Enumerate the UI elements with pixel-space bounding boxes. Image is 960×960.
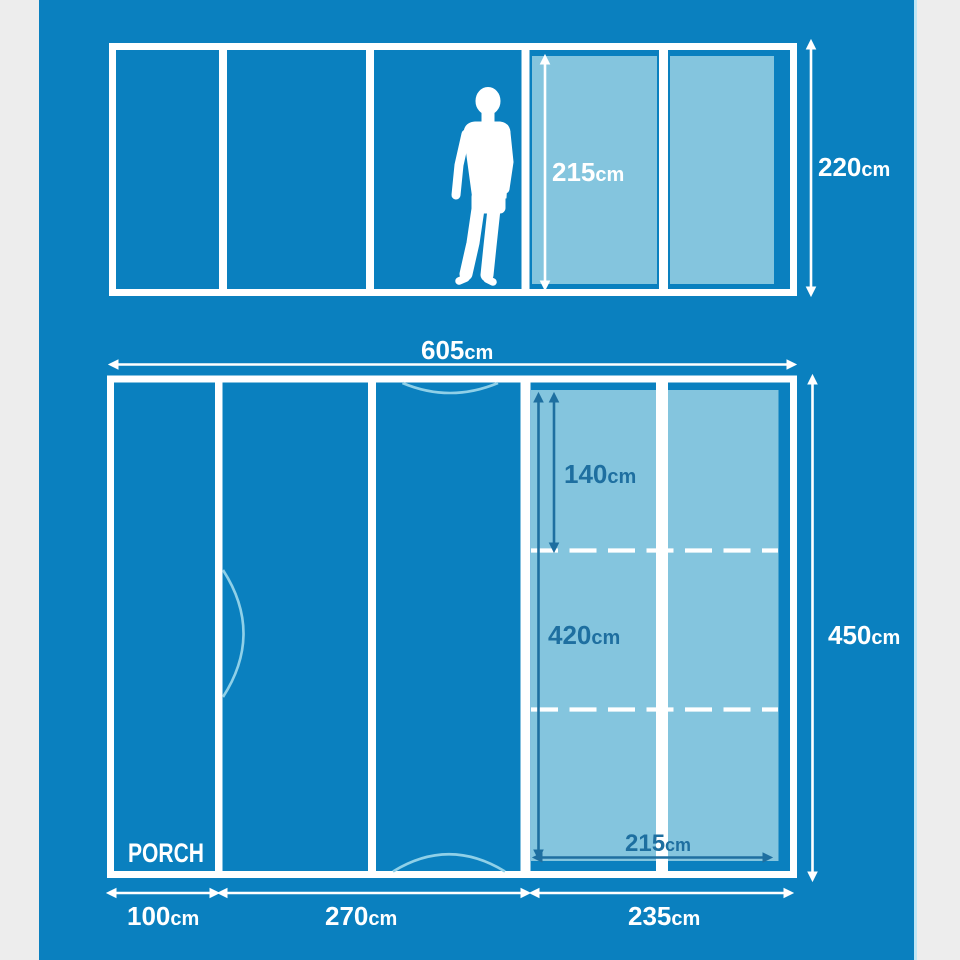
svg-text:605cm: 605cm <box>421 335 493 365</box>
svg-text:220cm: 220cm <box>818 152 890 182</box>
svg-text:215cm: 215cm <box>625 830 691 857</box>
svg-text:450cm: 450cm <box>828 620 900 650</box>
svg-text:100cm: 100cm <box>127 901 199 931</box>
svg-text:PORCH: PORCH <box>128 839 204 869</box>
svg-text:235cm: 235cm <box>628 901 700 931</box>
svg-text:270cm: 270cm <box>325 901 397 931</box>
